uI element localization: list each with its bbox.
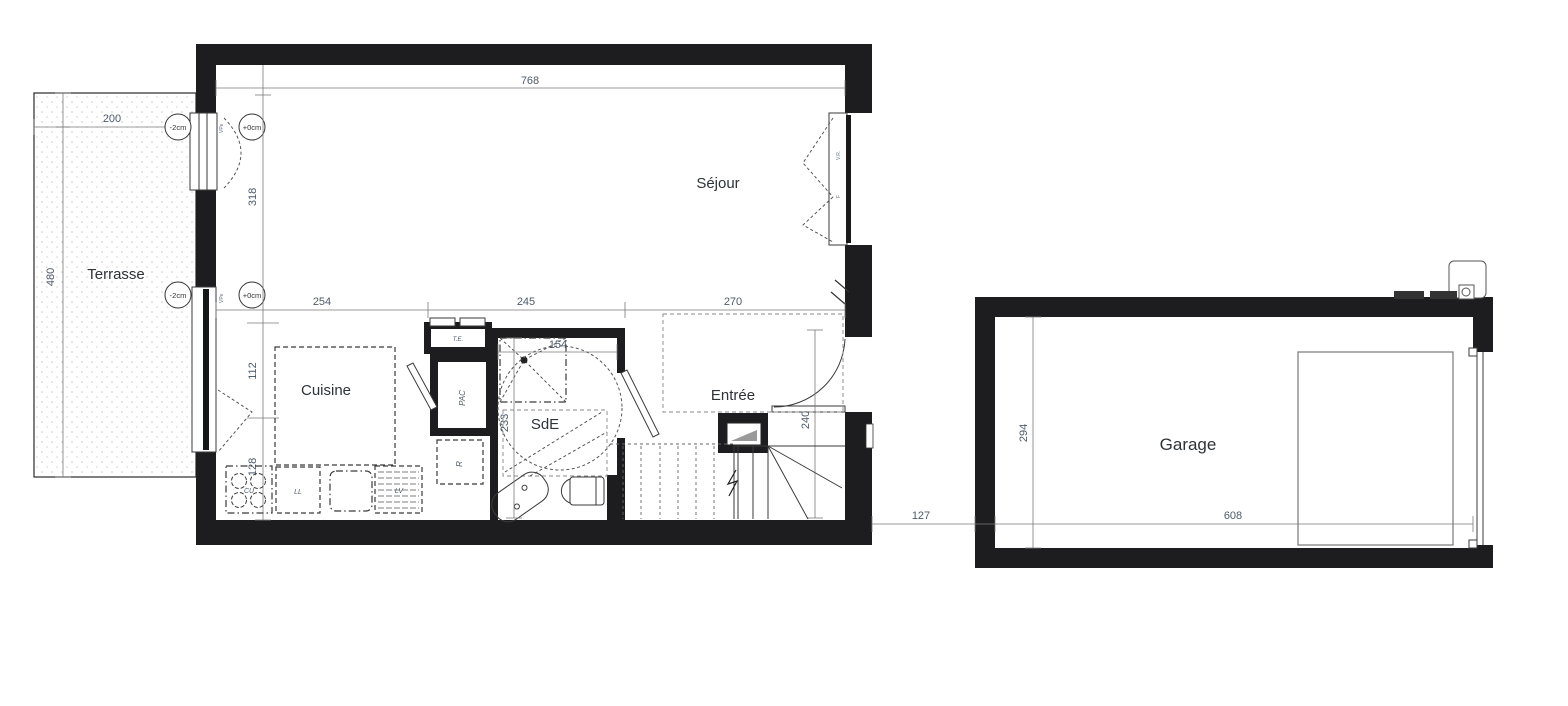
garage-wall-right-upper [1473,297,1493,352]
level-inside-top: +0cm [243,123,262,132]
sde-wall-left [490,328,498,520]
room-label-garage: Garage [1160,435,1217,454]
sde-wall-right-upper [617,328,625,373]
dim-seg-entree: 270 [724,296,742,308]
sejour-window: V.R. F [803,113,872,245]
dim-cuisine-lower: 128 [247,458,259,476]
kitchen-counter [275,347,395,465]
turning-circle [498,346,622,470]
wall-bottom [196,520,872,545]
wall-left-lower [196,452,216,520]
room-label-entree: Entrée [711,387,755,404]
stair-direction-arrow [728,470,737,496]
room-label-cuisine: Cuisine [301,382,351,399]
wall-vent-2 [1430,291,1457,299]
te-door-leaf-1 [430,318,455,326]
toilet [561,477,604,505]
dim-entree-height: 240 [800,411,812,429]
technical-closets: T.E. PAC R [407,318,494,484]
garage-door [1298,348,1483,548]
wall-right-middle [845,245,872,337]
cooktop-label: CU [244,488,255,495]
te-door-leaf-2 [460,318,485,326]
wall-top [196,44,872,65]
room-label-terrasse: Terrasse [87,266,145,283]
dim-gap-garage: 127 [912,510,930,522]
window-tag-vr: V.R. [836,151,842,160]
fridge-label: R [455,461,464,467]
te-label: T.E. [453,337,463,343]
level-inside-bottom: +0cm [243,291,262,300]
dim-seg-middle: 245 [517,296,535,308]
window-tag-f: F [836,195,842,198]
floor-plan-page: 200 480 Terrasse VPe VPe [0,0,1568,706]
entree-area: Entrée [663,314,843,453]
garage-wall-top [975,297,1493,317]
window-tag-vpe-bottom: VPe [219,293,225,303]
washing-machine: LL [276,467,320,513]
window-upper-swing [224,118,241,188]
window-tag-vpe-top: VPe [219,123,225,133]
garage-wall-bottom [975,548,1493,568]
kitchen-unit [330,471,372,511]
main-building-walls [196,44,872,545]
dim-garage-depth: 294 [1018,424,1030,442]
dim-terrace-width: 200 [103,113,121,125]
pac-label: PAC [458,390,467,406]
sde-wall-right-lower [607,475,625,520]
dim-sejour-height: 318 [247,188,259,206]
window-lower-glazing [203,289,209,450]
room-label-sejour: Séjour [696,175,739,192]
dim-top-width: 768 [521,75,539,87]
wall-vent-1 [1394,291,1424,299]
radiator-block [718,413,768,453]
dim-cuisine-upper: 112 [247,362,259,380]
utility-box [1394,261,1486,299]
sde-wall-top [490,328,625,338]
level-terrace-top: -2cm [170,123,187,132]
window-upper-frame [190,113,217,190]
level-terrace-bottom: -2cm [170,291,187,300]
washer-label: LL [294,489,302,496]
dishwasher-label: LV [395,488,405,495]
room-label-sde: SdE [531,416,559,433]
window-lower-swing [218,390,252,452]
sejour-window-glazing [846,115,851,243]
wall-niche [866,424,873,448]
dim-garage-width: 608 [1224,510,1242,522]
wall-right-upper [845,44,872,113]
dim-sde-width: 154 [549,339,567,351]
dishwasher: LV [375,466,422,513]
wall-left-middle [196,190,216,287]
garage-wall-left [975,297,995,568]
wall-left-upper [196,44,216,113]
sde-room: 154 233 SdE [486,328,659,527]
dim-sde-height: 233 [499,414,511,432]
dim-terrace-depth: 480 [45,268,57,286]
dim-seg-cuisine: 254 [313,296,331,308]
entry-door-cutout [845,337,872,412]
entry-door-swing [774,339,845,407]
sde-door-leaf [621,370,659,437]
stairs [610,444,845,519]
sejour-window-frame [829,113,847,245]
garage-building: 127 608 294 Garage [872,261,1493,568]
floor-plan-drawing: 200 480 Terrasse VPe VPe [0,0,1568,706]
